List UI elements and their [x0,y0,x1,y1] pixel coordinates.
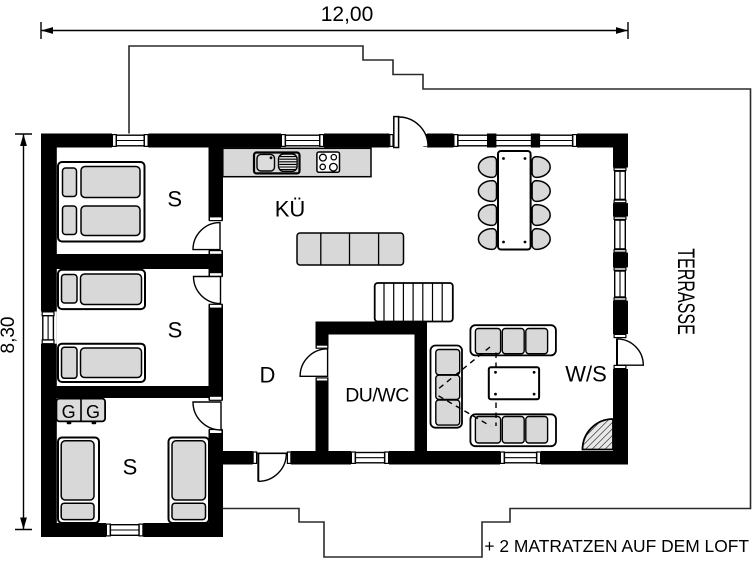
svg-text:8,30: 8,30 [0,317,19,354]
svg-text:TERRASSE: TERRASSE [672,248,698,335]
svg-text:S: S [168,318,183,343]
svg-text:12,00: 12,00 [321,3,374,26]
svg-text:+ 2 MATRATZEN AUF DEM LOFT: + 2 MATRATZEN AUF DEM LOFT [484,536,749,556]
svg-text:S: S [123,455,138,480]
svg-text:W/S: W/S [565,362,607,387]
svg-text:G: G [62,402,76,422]
svg-text:DU/WC: DU/WC [345,385,409,407]
svg-text:KÜ: KÜ [275,197,306,222]
svg-text:G: G [86,402,100,422]
svg-text:D: D [260,363,276,388]
svg-text:S: S [167,187,182,212]
